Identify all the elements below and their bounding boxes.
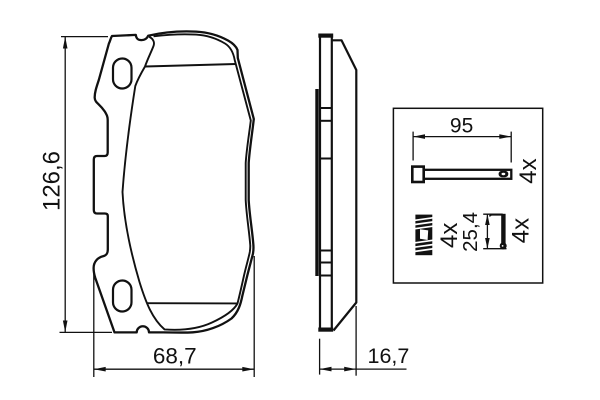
svg-text:4x: 4x (515, 158, 542, 183)
svg-text:25,4: 25,4 (459, 212, 482, 252)
svg-text:16,7: 16,7 (368, 344, 410, 368)
svg-text:126,6: 126,6 (39, 151, 66, 211)
svg-text:4x: 4x (508, 218, 535, 243)
svg-text:68,7: 68,7 (153, 343, 197, 368)
svg-text:95: 95 (450, 114, 473, 137)
